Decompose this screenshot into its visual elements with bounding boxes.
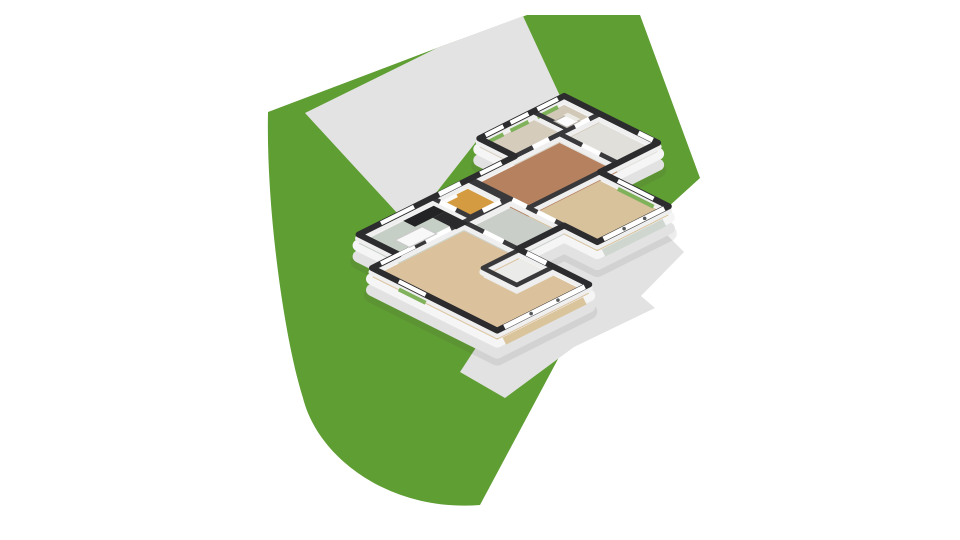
floorplan-3d-render xyxy=(0,0,960,540)
glass-doors-dining-se-divider-2 xyxy=(643,217,647,221)
sliding-doors-living-front-divider-1 xyxy=(529,312,533,316)
floorplan-canvas: 3D dollhouse floor plan of a single-stor… xyxy=(0,0,960,540)
glass-doors-dining-se-divider-1 xyxy=(622,227,626,231)
sliding-doors-living-front-divider-2 xyxy=(556,298,560,302)
